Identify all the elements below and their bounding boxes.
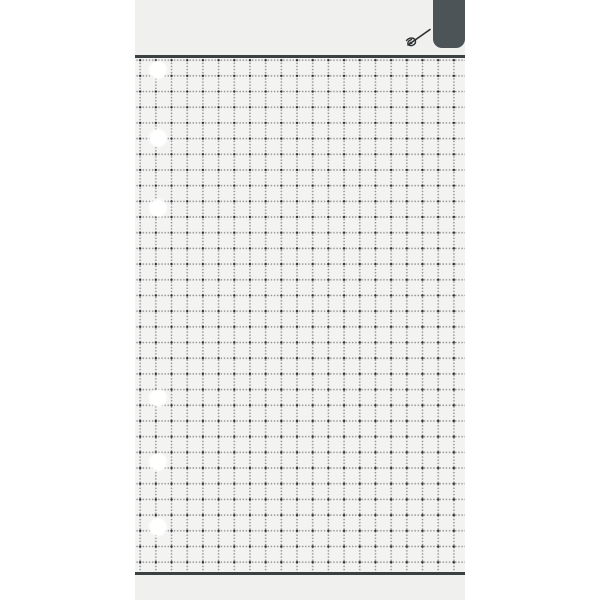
punch-hole (150, 454, 166, 470)
page-header-area (135, 0, 465, 55)
screenshot-canvas (0, 0, 600, 600)
divider-tab[interactable] (433, 0, 465, 48)
punch-hole (150, 390, 166, 406)
pen-icon[interactable] (402, 26, 432, 50)
punch-hole (150, 130, 166, 146)
organizer-page (135, 0, 465, 600)
punch-hole (150, 200, 166, 216)
page-footer-strip (135, 575, 465, 600)
punch-hole (150, 519, 166, 535)
punch-hole (150, 62, 166, 78)
dotted-grid-paper[interactable] (135, 58, 465, 572)
